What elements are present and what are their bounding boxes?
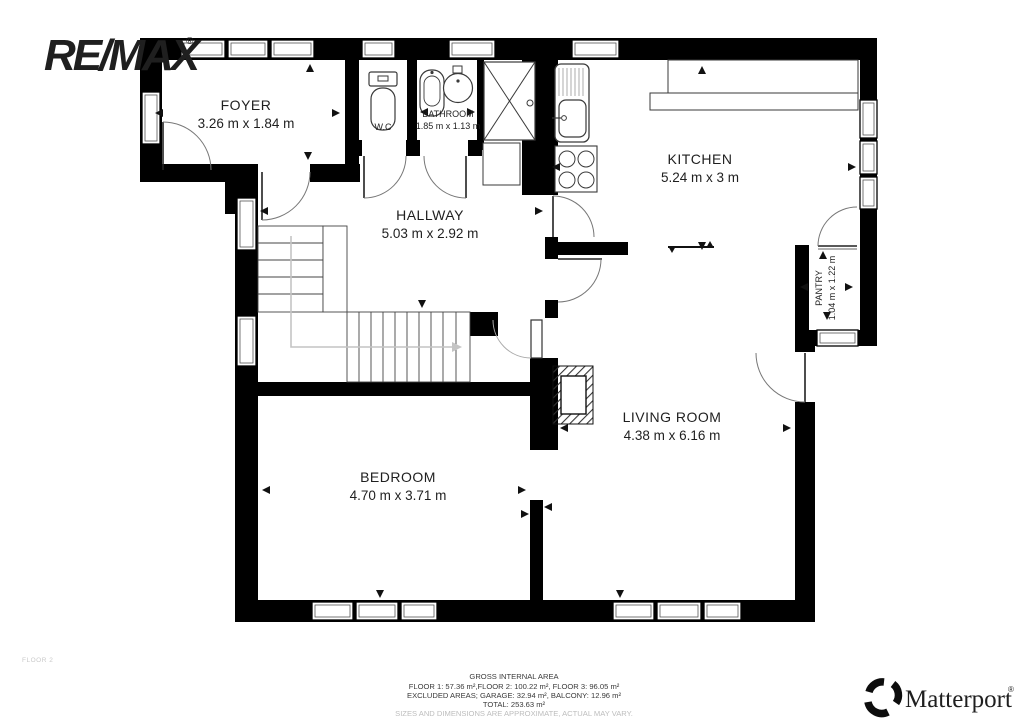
- window-kitchen-right-3: [860, 177, 877, 209]
- disclaimer-line: SIZES AND DIMENSIONS ARE APPROXIMATE, AC…: [395, 709, 633, 718]
- svg-text:1.85 m x 1.13 m: 1.85 m x 1.13 m: [416, 121, 481, 131]
- window-foyer-top-3: [271, 40, 314, 58]
- window-living-bottom: [613, 602, 741, 620]
- svg-text:BATHROOM: BATHROOM: [422, 109, 473, 119]
- window-bedroom-bottom: [312, 602, 437, 620]
- floor-label: FLOOR 2: [22, 657, 53, 664]
- window-foyer-left: [142, 92, 160, 144]
- stairs-door: [493, 320, 542, 358]
- pantry-door: [818, 207, 857, 249]
- kitchen-counter: [650, 60, 858, 110]
- fireplace-icon: [553, 366, 593, 424]
- window-kitchen-right-1: [860, 100, 877, 138]
- svg-text:RE/MAX: RE/MAX: [44, 31, 203, 80]
- svg-text:PANTRY: PANTRY: [814, 270, 824, 306]
- room-label-kitchen: KITCHEN 5.24 m x 3 m: [661, 151, 739, 185]
- svg-text:BEDROOM: BEDROOM: [360, 469, 436, 485]
- svg-text:W.C: W.C: [375, 122, 392, 132]
- staircase: [258, 226, 470, 382]
- room-label-pantry: PANTRY 1.04 m x 1.22 m: [814, 256, 837, 321]
- svg-text:3.26 m x 1.84 m: 3.26 m x 1.84 m: [198, 116, 295, 131]
- kitchen-door: [553, 196, 594, 237]
- room-label-living-room: LIVING ROOM 4.38 m x 6.16 m: [623, 409, 722, 443]
- svg-text:4.38 m x 6.16 m: 4.38 m x 6.16 m: [624, 428, 721, 443]
- window-wc-top: [362, 40, 395, 58]
- window-pantry: [817, 330, 858, 346]
- wc-door: [364, 156, 406, 198]
- svg-text:®: ®: [1008, 685, 1014, 694]
- floor-plan-page: FOYER 3.26 m x 1.84 m W.C BATHROOM 1.85 …: [0, 0, 1024, 723]
- svg-text:HALLWAY: HALLWAY: [396, 207, 464, 223]
- stove-icon: [555, 146, 597, 192]
- svg-text:®: ®: [186, 36, 194, 47]
- room-label-wc: W.C: [375, 122, 392, 132]
- opening-marker: [668, 241, 714, 253]
- svg-text:Matterport: Matterport: [905, 686, 1012, 713]
- svg-text:KITCHEN: KITCHEN: [668, 151, 733, 167]
- room-label-foyer: FOYER 3.26 m x 1.84 m: [198, 97, 295, 131]
- remax-logo: RE/MAX ®: [44, 31, 203, 80]
- svg-text:4.70 m x 3.71 m: 4.70 m x 3.71 m: [350, 488, 447, 503]
- svg-text:1.04 m x 1.22 m: 1.04 m x 1.22 m: [827, 256, 837, 321]
- gross-internal-area-title: GROSS INTERNAL AREA: [469, 672, 559, 681]
- excluded-areas-line: EXCLUDED AREAS; GARAGE: 32.94 m², BALCON…: [407, 691, 621, 700]
- svg-text:LIVING ROOM: LIVING ROOM: [623, 409, 722, 425]
- floor-areas-line: FLOOR 1: 57.36 m²,FLOOR 2: 100.22 m², FL…: [409, 682, 620, 691]
- svg-text:5.24 m x 3 m: 5.24 m x 3 m: [661, 170, 739, 185]
- room-label-bathroom: BATHROOM 1.85 m x 1.13 m: [416, 109, 481, 131]
- window-bathroom-top: [449, 40, 495, 58]
- matterport-logo: Matterport ®: [868, 682, 1014, 714]
- window-kitchen-top: [572, 40, 619, 58]
- svg-text:5.03 m x 2.92 m: 5.03 m x 2.92 m: [382, 226, 479, 241]
- matterport-icon: [868, 682, 898, 714]
- kitchen-sink-icon: [552, 64, 589, 142]
- total-area-line: TOTAL: 253.63 m²: [483, 700, 546, 709]
- window-west-2: [237, 316, 256, 366]
- window-kitchen-right-2: [860, 141, 877, 174]
- footer-stats: GROSS INTERNAL AREA FLOOR 1: 57.36 m²,FL…: [395, 672, 633, 718]
- window-west-1: [237, 198, 256, 250]
- room-label-bedroom: BEDROOM 4.70 m x 3.71 m: [350, 469, 447, 503]
- bathroom-door: [424, 156, 466, 198]
- svg-text:FOYER: FOYER: [221, 97, 272, 113]
- living-hallway-door: [558, 259, 602, 302]
- sink-icon: [444, 66, 473, 103]
- window-foyer-top-2: [228, 40, 268, 58]
- floor-plan-svg: FOYER 3.26 m x 1.84 m W.C BATHROOM 1.85 …: [0, 0, 1024, 723]
- room-label-hallway: HALLWAY 5.03 m x 2.92 m: [382, 207, 479, 241]
